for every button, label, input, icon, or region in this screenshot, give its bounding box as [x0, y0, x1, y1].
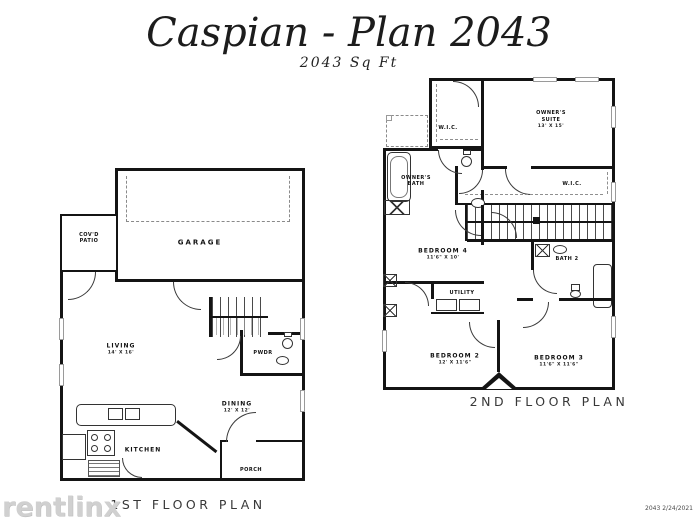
toilet-icon	[570, 290, 581, 298]
room-dims: 13' X 15'	[536, 124, 566, 130]
first-floor-plan: COV'D PATIO GARAGE LIVING 14' X 16' PWDR…	[60, 168, 310, 484]
wall	[240, 373, 302, 376]
angled-wall	[176, 420, 217, 453]
room-label-bedroom2: BEDROOM 2 12' X 11'6"	[430, 344, 480, 373]
wall	[256, 440, 302, 442]
closet-rod-dashes	[607, 172, 608, 194]
wall	[497, 320, 500, 372]
newel-post	[533, 217, 540, 224]
closet-rod-dashes	[465, 194, 603, 195]
wall	[531, 166, 615, 169]
stove-burner	[91, 445, 98, 452]
window-marker	[611, 182, 616, 202]
door-arc	[405, 282, 429, 306]
room-label-utility: UTILITY	[450, 290, 475, 296]
room-name: OWNER'S SUITE	[536, 110, 566, 122]
room-dims: 14' X 16'	[107, 350, 136, 356]
door-arc	[453, 81, 479, 107]
room-dims: 11'6" X 10'	[418, 255, 468, 261]
stove-icon	[87, 430, 115, 456]
wall	[60, 478, 305, 481]
room-label-bedroom3: BEDROOM 3 11'6" X 11'6"	[534, 346, 584, 375]
wall	[383, 148, 386, 390]
room-label-owners-suite: OWNER'S SUITE 13' X 15'	[536, 104, 566, 136]
door-arc	[505, 169, 531, 195]
door-arc	[173, 282, 201, 310]
door-arc	[217, 336, 241, 360]
closet-rod-dashes	[440, 139, 478, 140]
toilet-icon	[282, 338, 293, 349]
wall	[481, 78, 484, 149]
wall	[431, 281, 484, 284]
wall	[209, 297, 212, 337]
room-label-garage: GARAGE	[178, 239, 223, 248]
kitchen-sink-icon	[108, 408, 123, 420]
stair-railing	[212, 316, 268, 318]
room-name: BEDROOM 2	[430, 352, 480, 359]
room-label-wic: W.I.C.	[438, 125, 457, 131]
room-label-kitchen: KITCHEN	[125, 446, 162, 454]
toilet-icon	[461, 156, 472, 167]
wall	[559, 298, 615, 301]
second-floor-caption: 2ND FLOOR PLAN	[449, 394, 649, 409]
second-floor-plan: W.I.C. OWNER'S SUITE 13' X 15' OWNER'S B…	[383, 78, 621, 392]
stove-burner	[104, 445, 111, 452]
page-title: Caspian - Plan 2043	[0, 10, 698, 56]
door-arc	[459, 170, 483, 194]
toilet-icon	[284, 332, 292, 337]
door-arc	[438, 150, 462, 174]
door-arc	[523, 302, 549, 328]
page-subtitle: 2043 Sq Ft	[0, 55, 698, 71]
room-label-porch: PORCH	[240, 467, 262, 473]
wall	[220, 440, 222, 481]
garage-door-dashes	[126, 176, 290, 222]
toilet-icon	[463, 150, 471, 155]
window-marker	[575, 77, 599, 82]
door-arc	[68, 272, 96, 300]
room-label-bedroom4: BEDROOM 4 11'6" X 10'	[418, 239, 468, 268]
wall	[383, 148, 438, 151]
refrigerator-icon	[62, 434, 86, 460]
shower-icon	[535, 244, 550, 257]
room-name: BEDROOM 3	[534, 354, 584, 361]
roof-corner-mark	[386, 115, 392, 121]
window-marker	[533, 77, 557, 82]
stove-burner	[91, 434, 98, 441]
rentlinx-watermark: rentlinx	[2, 492, 121, 523]
room-dims: 12' X 12'	[222, 408, 252, 414]
sink-icon	[276, 356, 289, 365]
wall	[302, 280, 305, 481]
door-arc	[122, 458, 142, 478]
room-label-patio: COV'D PATIO	[79, 232, 99, 245]
window-marker	[59, 318, 64, 340]
door-arc	[455, 210, 481, 236]
plan-revision-note: 2043 2/24/2021	[598, 505, 693, 512]
room-label-dining: DINING 12' X 12'	[222, 392, 252, 421]
window-marker	[382, 330, 387, 352]
wall	[431, 312, 484, 314]
roof-outline-dashes	[386, 115, 428, 147]
window-marker	[611, 106, 616, 128]
stove-burner	[104, 434, 111, 441]
window-marker	[611, 316, 616, 338]
sink-icon	[553, 245, 567, 254]
linen-closet-icon	[383, 274, 397, 287]
bathtub-icon	[593, 264, 612, 308]
wall	[531, 242, 534, 270]
room-label-wic: W.I.C.	[562, 181, 581, 187]
entry-bay-inner	[486, 378, 512, 389]
pantry-shelves	[88, 460, 120, 477]
wall	[481, 205, 484, 245]
window-marker	[300, 390, 305, 412]
dryer-icon	[459, 299, 480, 311]
room-dims: 11'6" X 11'6"	[534, 362, 584, 368]
room-name: DINING	[222, 400, 252, 407]
room-label-bath2: BATH 2	[555, 256, 578, 262]
wall	[481, 148, 484, 170]
wall	[467, 239, 615, 242]
wall	[431, 281, 434, 299]
kitchen-sink-icon	[125, 408, 140, 420]
wall	[429, 78, 432, 148]
room-label-living: LIVING 14' X 16'	[107, 334, 136, 363]
floor-plan-sheet: Caspian - Plan 2043 2043 Sq Ft	[0, 0, 698, 526]
window-marker	[59, 364, 64, 386]
room-label-owners-bath: OWNER'S BATH	[401, 175, 431, 188]
wall	[517, 298, 533, 301]
room-name: BEDROOM 4	[418, 247, 468, 254]
door-arc	[533, 270, 557, 294]
room-label-pwdr: PWDR	[253, 350, 272, 356]
window-marker	[300, 318, 305, 340]
linen-closet-icon	[383, 304, 397, 317]
closet-rod-dashes	[436, 84, 437, 142]
shower-icon	[384, 200, 410, 215]
washer-icon	[436, 299, 457, 311]
room-name: LIVING	[107, 342, 136, 349]
wall	[481, 166, 507, 169]
room-dims: 12' X 11'6"	[430, 360, 480, 366]
